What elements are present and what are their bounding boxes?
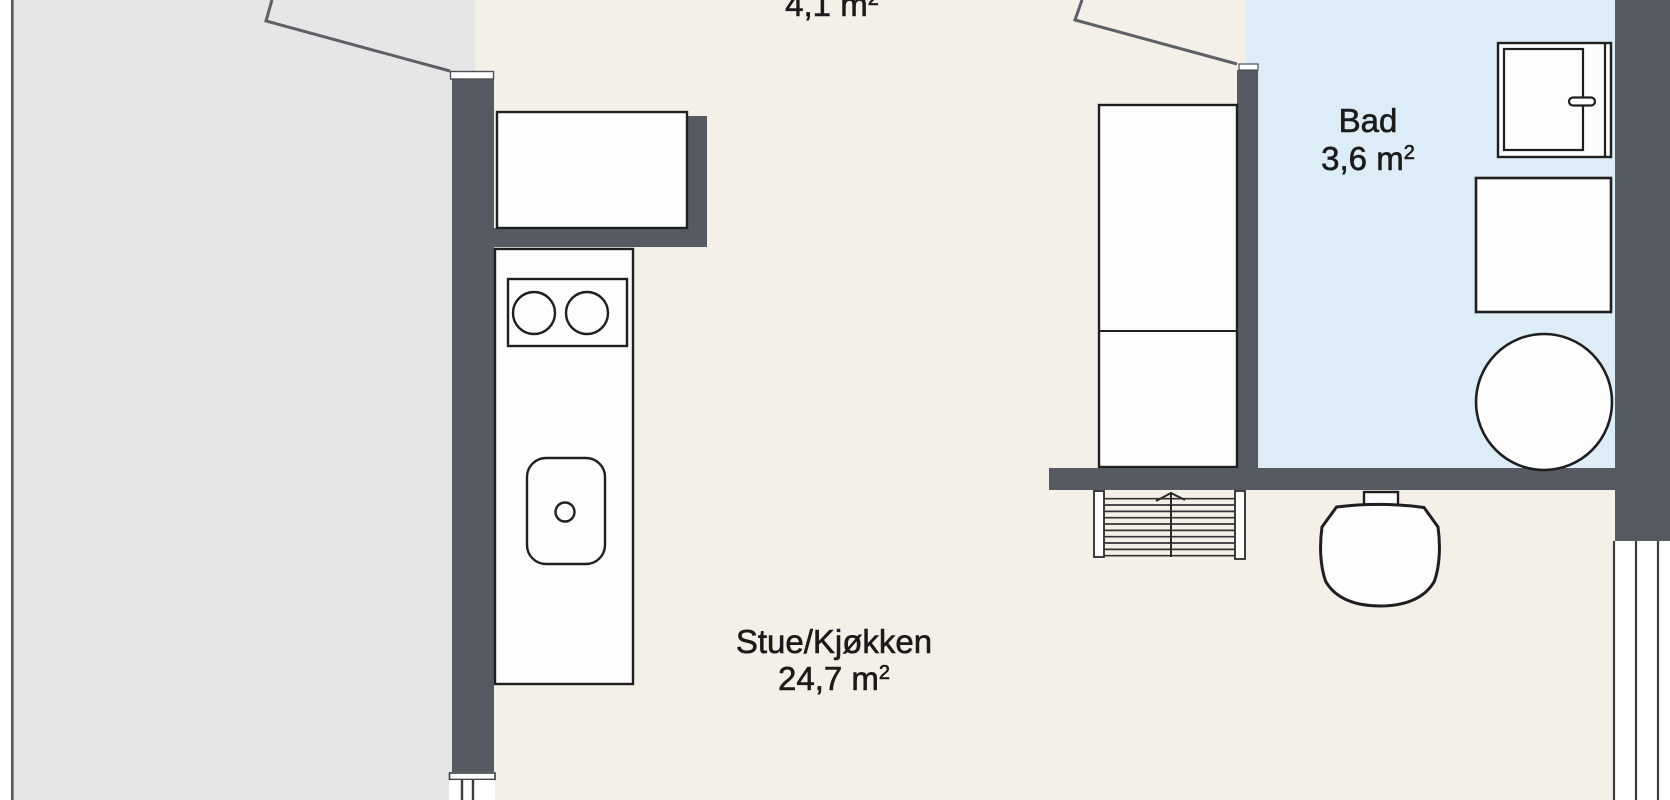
svg-text:24,7 m2: 24,7 m2 [778,660,890,697]
svg-text:Stue/Kjøkken: Stue/Kjøkken [736,623,932,660]
svg-text:3,6 m2: 3,6 m2 [1321,140,1415,177]
svg-text:4,1 m2: 4,1 m2 [785,0,879,23]
svg-text:Bad: Bad [1339,102,1398,139]
